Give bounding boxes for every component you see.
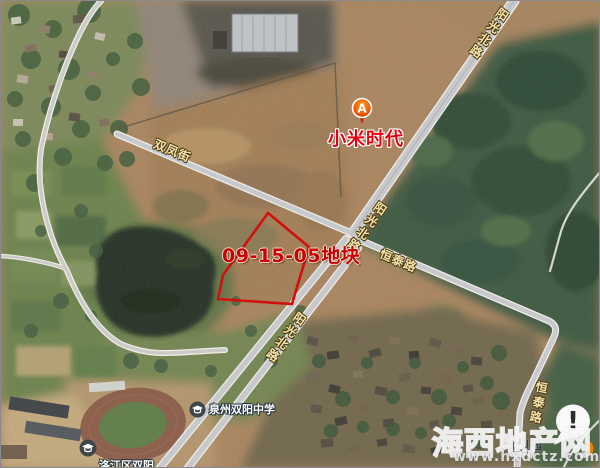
- satellite-map: 阳光北路 阳光北路 阳光北路 双凤街 恒泰路 恒泰路 泉州双阳中学 洛江区双阳 …: [0, 0, 600, 468]
- image-grain: [1, 1, 600, 468]
- satellite-imagery: [1, 1, 600, 468]
